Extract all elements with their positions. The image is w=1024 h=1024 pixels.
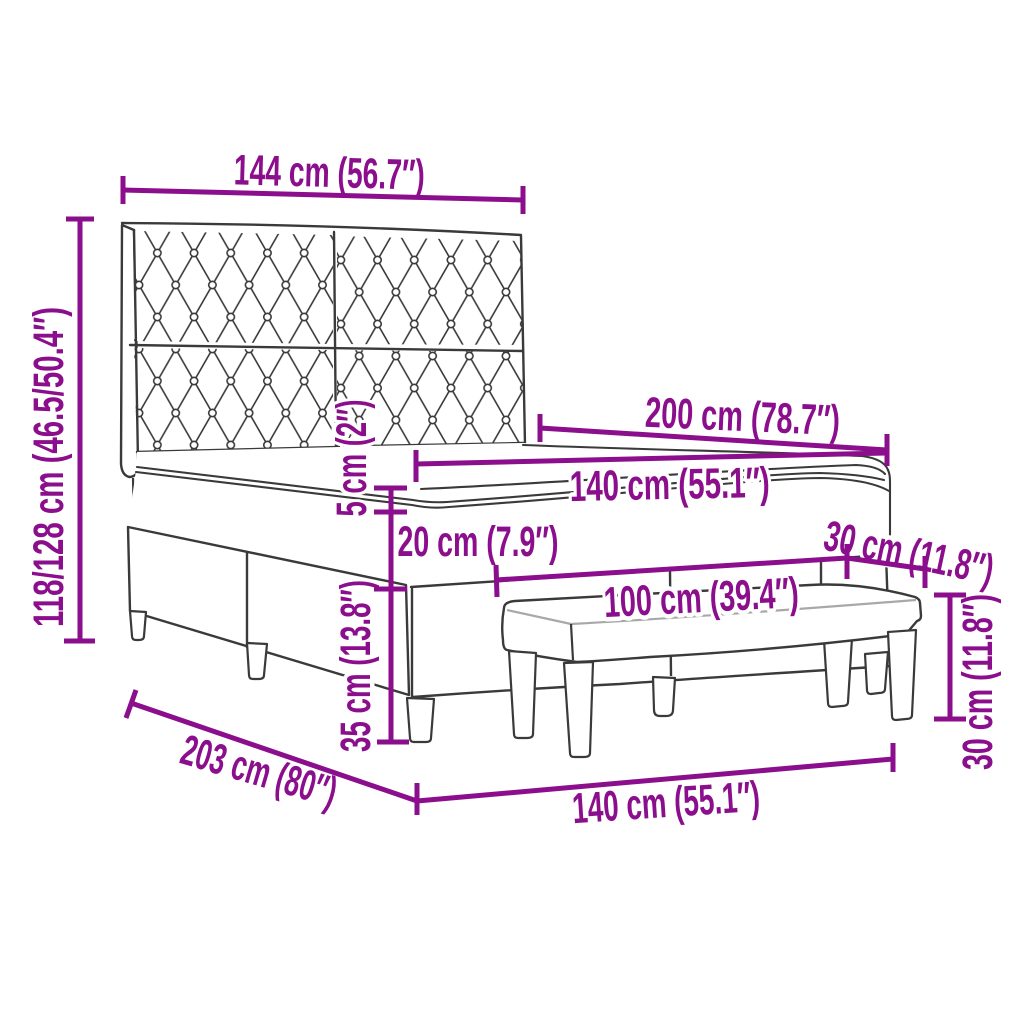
svg-text:140 cm (55.1″): 140 cm (55.1″) [569,459,770,511]
svg-text:118/128 cm (46.5/50.4″): 118/128 cm (46.5/50.4″) [25,307,73,627]
svg-text:5 cm (2″): 5 cm (2″) [328,400,376,517]
svg-text:20 cm (7.9″): 20 cm (7.9″) [398,518,559,566]
svg-text:100 cm (39.4″): 100 cm (39.4″) [603,569,800,627]
svg-text:35 cm (13.8″): 35 cm (13.8″) [332,580,380,752]
svg-text:144 cm (56.7″): 144 cm (56.7″) [233,146,425,199]
svg-text:203 cm (80″): 203 cm (80″) [175,726,342,817]
svg-text:200 cm (78.7″): 200 cm (78.7″) [644,389,841,445]
svg-text:30 cm (11.8″): 30 cm (11.8″) [954,594,1002,770]
svg-text:140 cm (55.1″): 140 cm (55.1″) [571,773,762,833]
